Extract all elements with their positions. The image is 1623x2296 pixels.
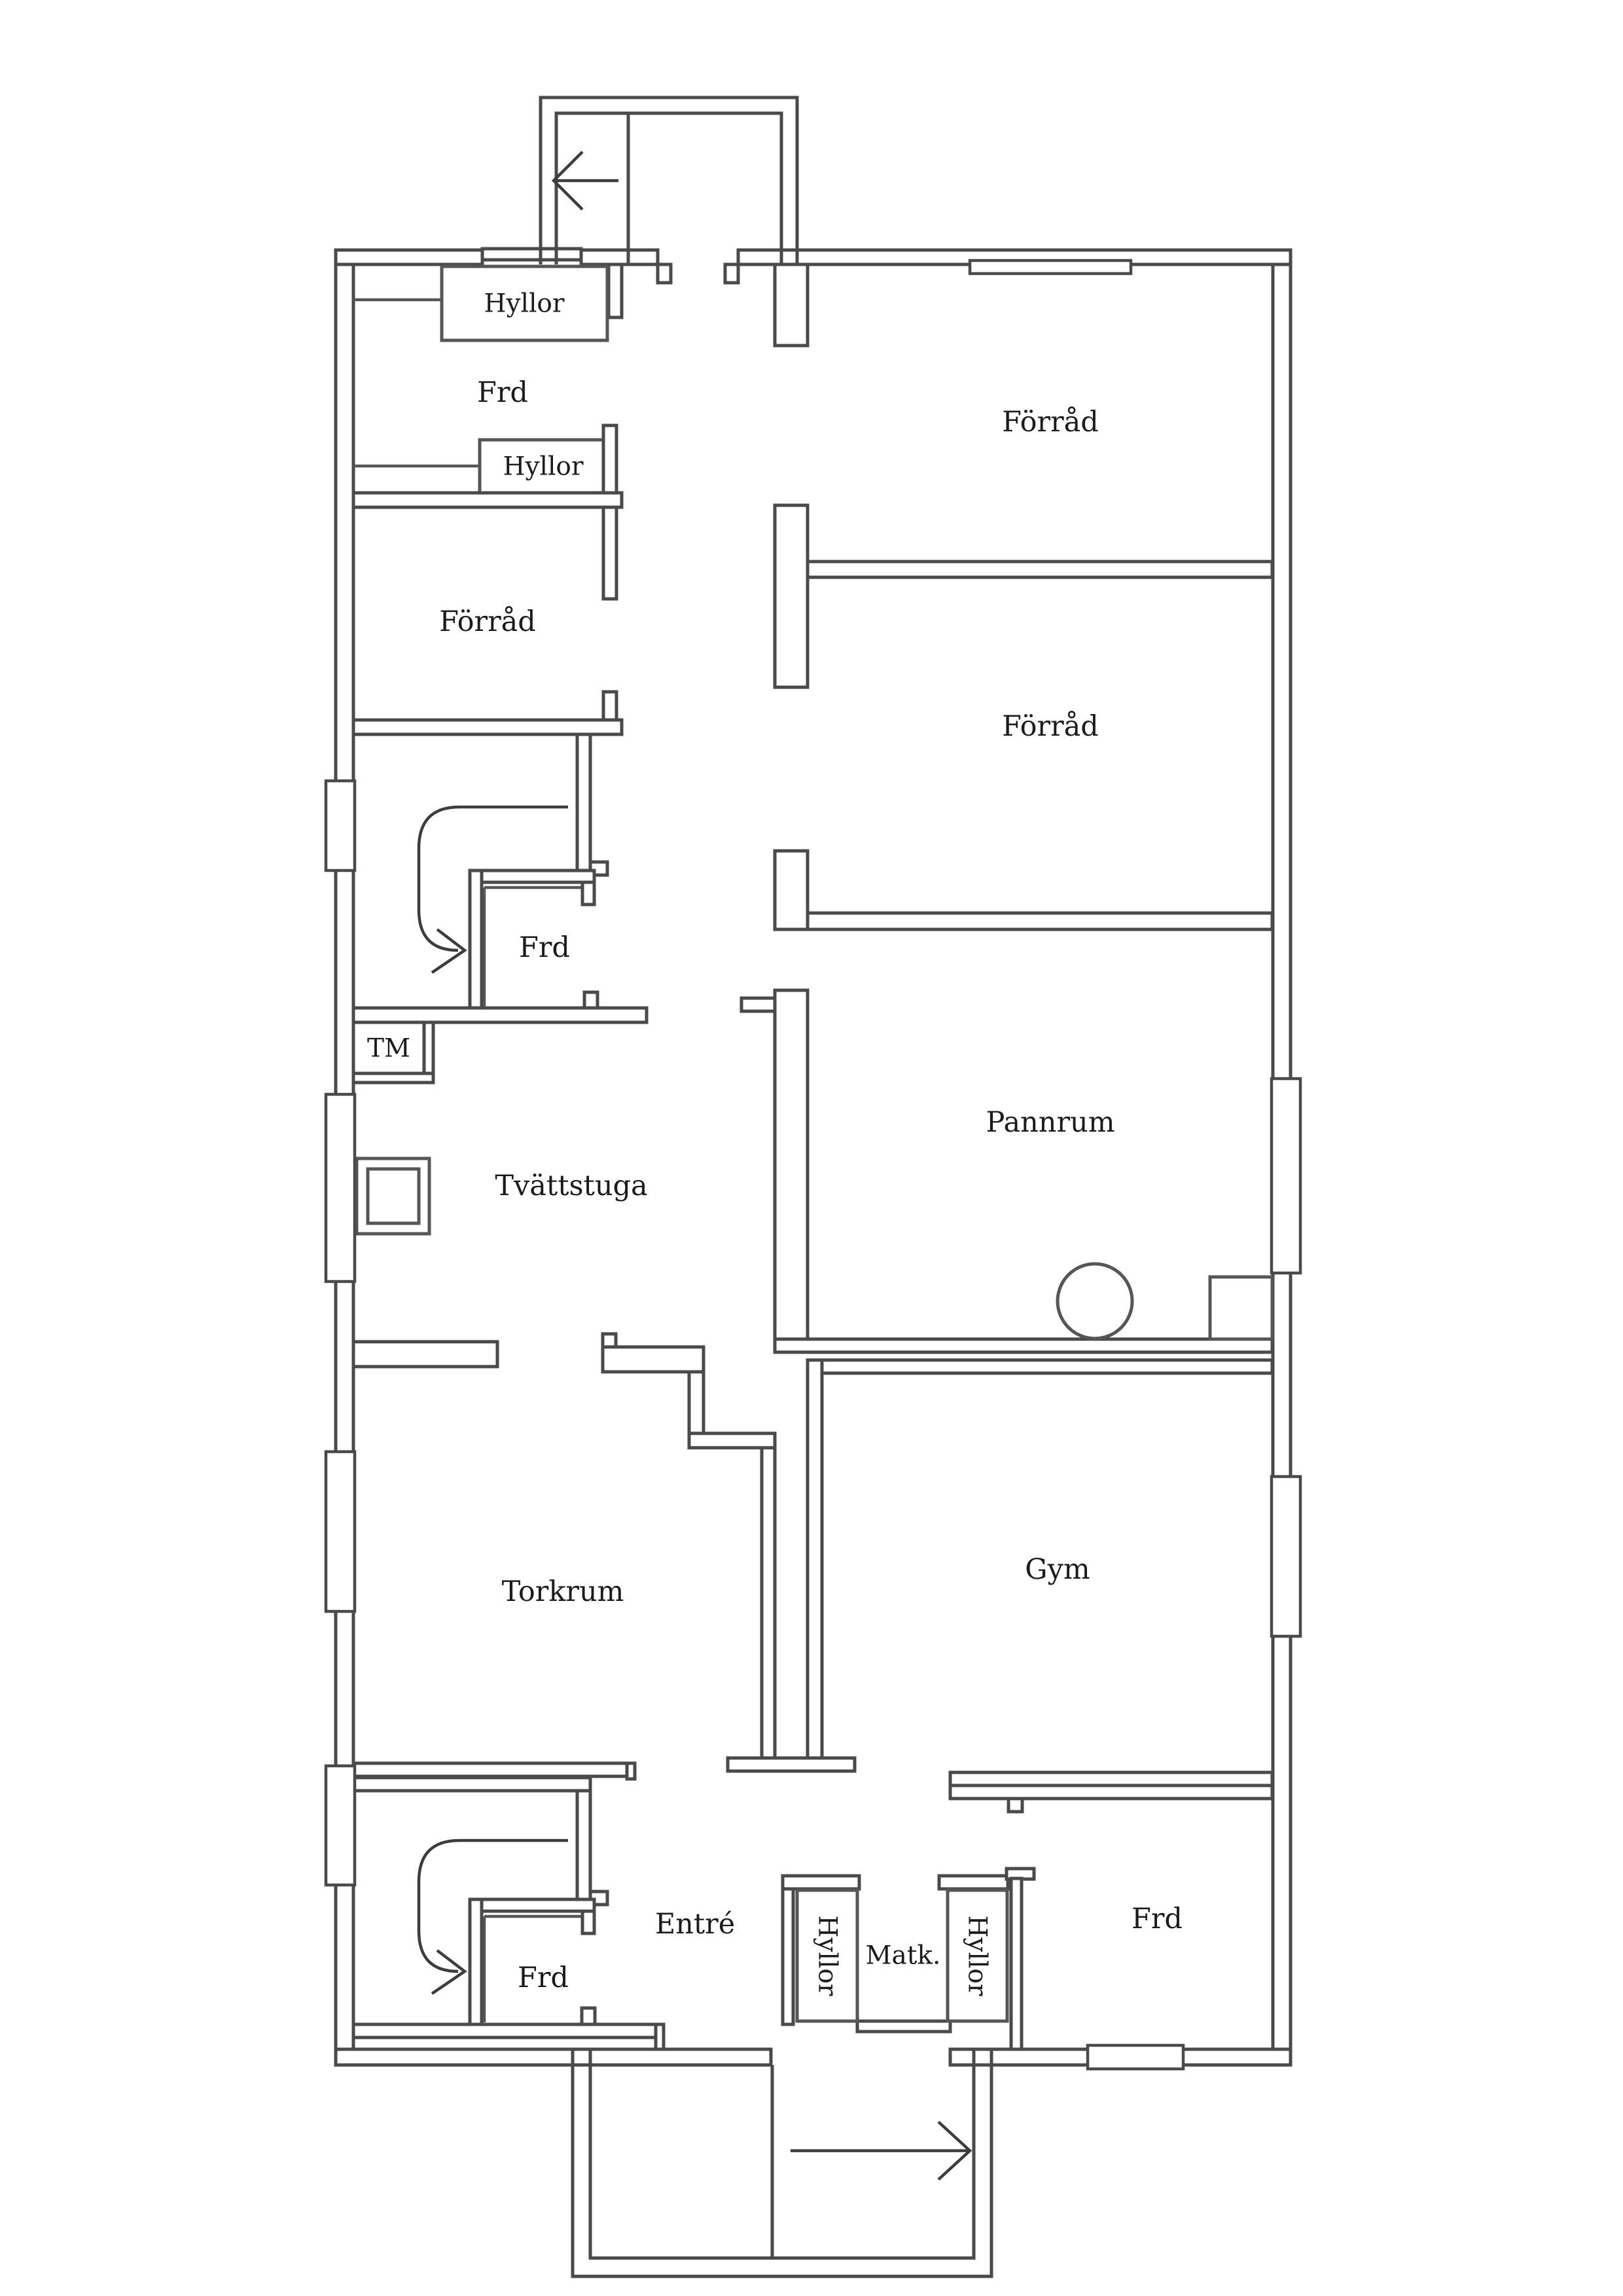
laundry-fixtures (357, 1158, 429, 1234)
wall-east-upper (603, 507, 616, 599)
door-jamb (603, 1334, 616, 1347)
label-tm: TM (367, 1034, 410, 1064)
wall-torkrum-bottom (353, 1763, 635, 1776)
corridor-wall-east-b (775, 505, 808, 687)
label-pannrum: Pannrum (986, 1106, 1115, 1139)
closet-wall-left (470, 1899, 482, 2024)
wall-laundry-bottom-a (353, 1342, 497, 1367)
alcove-wall-left (783, 1876, 793, 2024)
wall-room-left (1011, 1878, 1022, 2049)
wall-step-horizontal (689, 1433, 775, 1448)
gym-walls (728, 1360, 1272, 1785)
wall-outer-bottom-a (336, 2049, 771, 2065)
label-frd-stair-bottom: Frd (518, 1962, 569, 1994)
stair-outer-wall (573, 2049, 991, 2276)
window-icon (326, 1094, 355, 1282)
wall-pannrum-top (808, 913, 1272, 929)
door-leaf-icon (857, 2021, 950, 2032)
floor-plan: Hyllor Frd Hyllor Förråd Förråd Förråd F… (0, 0, 1623, 2296)
wall-gym-bottom (950, 1772, 1272, 1785)
wall-outer-top-a (336, 250, 482, 264)
bottom-left-walls (353, 1763, 664, 2049)
door-jamb (741, 998, 775, 1011)
label-hyllor-bottom-left: Hyllor (813, 1915, 842, 1996)
door-jamb (582, 2008, 595, 2024)
door-jamb (582, 1911, 594, 1933)
wall-gym-west (808, 1360, 822, 1759)
window-icon (326, 1452, 355, 1611)
shelf-cap (783, 1876, 859, 1889)
window-icon (326, 781, 355, 870)
window-icon (970, 260, 1131, 274)
boiler-circle-icon (1058, 1264, 1132, 1338)
window-icon (326, 1766, 355, 1885)
label-hyllor-top: Hyllor (484, 289, 564, 319)
label-frd-topleft: Frd (477, 376, 528, 409)
label-forrad-right-1: Förråd (1002, 406, 1099, 439)
wall-forrad-divider (808, 562, 1272, 577)
corridor-wall-east-c (775, 851, 808, 929)
wall-room-bottom (353, 493, 622, 507)
right-rooms-walls (775, 562, 1272, 1352)
door-threshold-top-icon (482, 249, 581, 260)
door-jamb (1008, 1799, 1022, 1812)
corridor-wall-west-a (609, 264, 622, 317)
wall-room-bottom (353, 720, 622, 734)
wall-hall-top (353, 1778, 590, 1791)
wall-step (656, 2024, 664, 2049)
wall-torkrum-east (762, 1448, 775, 1761)
door-jamb (725, 264, 738, 283)
label-gym: Gym (1025, 1553, 1090, 1586)
corridor-wall-east-column (775, 990, 808, 1339)
label-forrad-right-2: Förråd (1002, 710, 1099, 743)
door-jamb (582, 882, 594, 905)
laundry-torkrum-walls (353, 1334, 775, 1761)
wall-room-top (950, 1785, 1272, 1799)
wall-pannrum-bottom (775, 1339, 1272, 1352)
wall-hall-bottom (353, 1008, 647, 1022)
wall-slab (728, 1758, 855, 1771)
stair-up-arrow-left-icon (554, 152, 618, 209)
shelf-cap (939, 1876, 1008, 1889)
stair-inner-wall (556, 113, 781, 264)
label-matk: Matk. (866, 1941, 941, 1971)
window-icon (1272, 1477, 1300, 1636)
door-jamb (584, 992, 597, 1008)
label-hyllor-mid: Hyllor (503, 452, 583, 482)
top-stair-block (541, 98, 797, 264)
label-hyllor-bottom-right: Hyllor (963, 1915, 992, 1996)
label-frd-bottomright: Frd (1132, 1903, 1183, 1935)
label-frd-stair-mid: Frd (519, 931, 570, 964)
label-torkrum: Torkrum (502, 1575, 624, 1608)
closet-wall-top (470, 1899, 594, 1911)
boiler-equipment-box (1210, 1277, 1272, 1339)
door-jamb (627, 1763, 635, 1779)
closet-wall-bottom (353, 1073, 433, 1083)
label-entre: Entré (655, 1908, 735, 1941)
corridor-wall-east-pier (775, 264, 808, 346)
wall-east (577, 734, 590, 875)
stair-up-arrow-right-icon (791, 2122, 970, 2179)
mid-stair-hall (353, 734, 647, 1022)
label-forrad-left: Förråd (439, 605, 536, 638)
window-icon (1088, 2045, 1183, 2069)
wall-outer-top-b (581, 250, 658, 264)
wall-gym-top (808, 1360, 1272, 1373)
closet-wall-top (470, 870, 594, 882)
window-icon (1272, 1079, 1300, 1273)
sink-box-inner (368, 1169, 419, 1223)
label-tvattstuga: Tvättstuga (495, 1170, 647, 1202)
stair-inner-wall (590, 2049, 974, 2258)
wall-hall-east (577, 1791, 590, 1905)
door-jamb (658, 264, 671, 283)
wall-laundry-bottom-b (603, 1347, 704, 1372)
floor-plan-page: Hyllor Frd Hyllor Förråd Förråd Förråd F… (0, 0, 1623, 2296)
closet-wall-left (470, 870, 482, 1009)
wall-hall-bottom (353, 2024, 656, 2037)
